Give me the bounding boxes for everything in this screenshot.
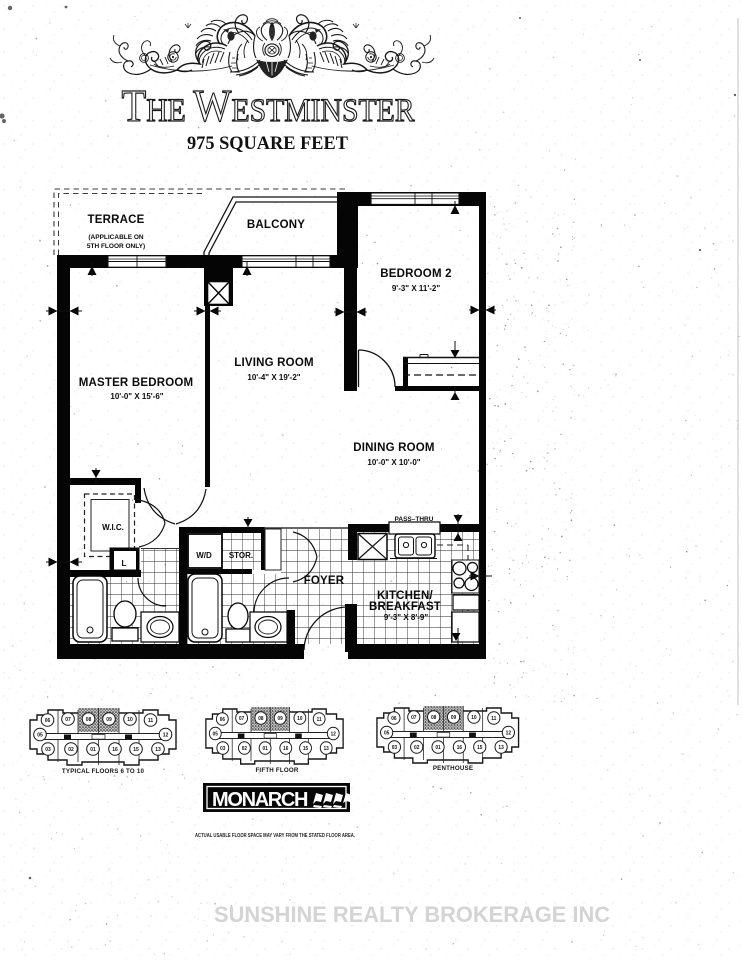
svg-text:10'-0" X 15'-6": 10'-0" X 15'-6" (110, 392, 163, 401)
svg-text:TYPICAL FLOORS 6 TO 10: TYPICAL FLOORS 6 TO 10 (62, 768, 145, 775)
svg-text:TERRACE: TERRACE (88, 214, 145, 226)
svg-text:5TH FLOOR ONLY): 5TH FLOOR ONLY) (87, 243, 145, 250)
svg-text:PASS–THRU: PASS–THRU (395, 516, 434, 523)
svg-text:MASTER BEDROOM: MASTER BEDROOM (79, 377, 194, 389)
svg-text:W.I.C.: W.I.C. (102, 523, 124, 532)
svg-text:FIFTH FLOOR: FIFTH FLOOR (255, 767, 298, 774)
svg-text:SUNSHINE REALTY BROKERAGE INC: SUNSHINE REALTY BROKERAGE INC (214, 902, 610, 927)
svg-text:L: L (122, 559, 127, 568)
svg-text:LIVING ROOM: LIVING ROOM (234, 357, 314, 369)
svg-text:975 SQUARE FEET: 975 SQUARE FEET (187, 133, 348, 154)
svg-text:W/D: W/D (196, 551, 212, 560)
svg-text:BREAKFAST: BREAKFAST (369, 601, 441, 613)
svg-text:STOR.: STOR. (229, 551, 253, 560)
svg-text:DINING ROOM: DINING ROOM (353, 442, 434, 454)
svg-text:10'-0" X 10'-0": 10'-0" X 10'-0" (367, 458, 420, 467)
svg-text:PENTHOUSE: PENTHOUSE (433, 765, 473, 772)
svg-text:10'-4" X 19'-2": 10'-4" X 19'-2" (247, 373, 300, 382)
svg-text:9'-3" X 11'-2": 9'-3" X 11'-2" (392, 284, 441, 293)
svg-text:MONARCH: MONARCH (212, 789, 309, 811)
svg-text:9'-3" X 8'-9": 9'-3" X 8'-9" (384, 613, 429, 622)
svg-text:FOYER: FOYER (304, 575, 345, 587)
svg-text:BALCONY: BALCONY (247, 219, 305, 231)
svg-text:ACTUAL USABLE FLOOR SPACE MAY: ACTUAL USABLE FLOOR SPACE MAY VARY FROM … (195, 833, 355, 839)
svg-text:BEDROOM 2: BEDROOM 2 (380, 268, 451, 280)
svg-text:(APPLICABLE ON: (APPLICABLE ON (88, 234, 144, 241)
